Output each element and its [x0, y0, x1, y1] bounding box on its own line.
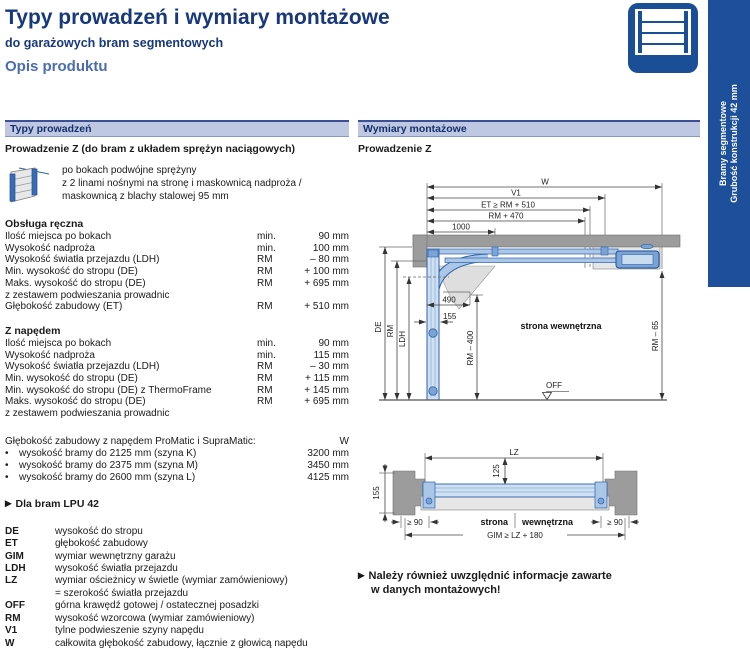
table-row: Min. wysokość do stropu (DE)RM+ 100 mm — [5, 266, 349, 278]
row-label: Min. wysokość do stropu (DE) z ThermoFra… — [5, 385, 257, 397]
dim-label-de: DE — [374, 321, 383, 332]
page-title: Typy prowadzeń i wymiary montażowe — [5, 6, 390, 30]
row-label: z zestawem podwieszania prowadnic — [5, 290, 257, 302]
legend-desc-line1: wymiar ościeżnicy w świetle (wymiar zamó… — [55, 575, 288, 586]
legend-abbr: ET — [5, 538, 55, 550]
door-panel — [427, 249, 439, 400]
lpu-note: ▶Dla bram LPU 42 — [5, 498, 349, 510]
legend-desc: wysokość wzorcowa (wymiar zamówieniowy) — [55, 613, 349, 625]
depth-row: •wysokość bramy do 2375 mm (szyna M)3450… — [5, 460, 349, 472]
row-value: 3200 mm — [289, 448, 349, 460]
depth-row: •wysokość bramy do 2125 mm (szyna K)3200… — [5, 448, 349, 460]
table-row: Wysokość nadprożamin.100 mm — [5, 243, 349, 255]
table-row: Ilość miejsca po bokachmin.90 mm — [5, 338, 349, 350]
mounting-note: ▶Należy również uwzględnić informacje za… — [358, 568, 612, 597]
bullet-icon: • — [5, 448, 19, 460]
row-value: 4125 mm — [289, 472, 349, 484]
row-label: Wysokość nadproża — [5, 243, 257, 255]
arrow-right-icon: ▶ — [358, 570, 365, 580]
inside-label: strona wewnętrzna — [520, 321, 602, 331]
row-value — [293, 290, 349, 302]
sectional-door-icon — [628, 3, 698, 73]
row-label: Maks. wysokość do stropu (DE) — [5, 278, 257, 290]
dim-label-125: 125 — [492, 464, 501, 478]
horizontal-track — [430, 249, 618, 254]
row-value: 100 mm — [293, 243, 349, 255]
row-value: + 145 mm — [293, 385, 349, 397]
off-label: OFF — [546, 381, 562, 390]
table-row: Ilość miejsca po bokachmin.90 mm — [5, 231, 349, 243]
row-label: Ilość miejsca po bokach — [5, 231, 257, 243]
legend-desc: wymiar ościeżnicy w świetle (wymiar zamó… — [55, 575, 349, 600]
depth-label: Głębokość zabudowy z napędem ProMatic i … — [5, 436, 289, 448]
dim-label-gim: GIM ≥ LZ + 180 — [487, 531, 543, 540]
legend-abbr: DE — [5, 526, 55, 538]
page-subtitle: do garażowych bram segmentowych — [5, 36, 223, 50]
legend-desc: górna krawędź gotowej / ostatecznej posa… — [55, 600, 349, 612]
row-unit: RM — [257, 396, 293, 408]
right-subheader: Prowadzenie Z — [358, 143, 700, 156]
row-label: Ilość miejsca po bokach — [5, 338, 257, 350]
roller — [429, 329, 437, 337]
depth-header-row: Głębokość zabudowy z napędem ProMatic i … — [5, 436, 349, 448]
note-line1: ▶Należy również uwzględnić informacje za… — [358, 568, 612, 583]
dim-label-155: 155 — [443, 312, 457, 321]
table-row: Maks. wysokość do stropu (DE)RM+ 695 mm — [5, 396, 349, 408]
intro-block: po bokach podwójne sprężyny z 2 linami n… — [5, 164, 349, 206]
table-row: Wysokość nadprożamin.115 mm — [5, 350, 349, 362]
row-value: – 30 mm — [293, 361, 349, 373]
section-title: Opis produktu — [5, 58, 108, 75]
row-value: 90 mm — [293, 231, 349, 243]
side-tab: Bramy segmentowe Grubość konstrukcji 42 … — [708, 0, 750, 287]
door-segment-line — [641, 43, 685, 45]
row-label: Maks. wysokość do stropu (DE) — [5, 396, 257, 408]
suspension-bracket — [601, 247, 608, 255]
row-value: 3450 mm — [289, 460, 349, 472]
dim-label-ldh: LDH — [398, 331, 407, 347]
side-tab-line2: Grubość konstrukcji 42 mm — [729, 84, 740, 203]
row-value — [293, 408, 349, 420]
inside-label-2: wewnętrzna — [521, 517, 574, 527]
row-unit: min. — [257, 350, 293, 362]
legend-desc: głębokość zabudowy — [55, 538, 349, 550]
legend-desc: wysokość światła przejazdu — [55, 563, 349, 575]
fascia-panel — [421, 496, 609, 510]
intro-line: po bokach podwójne sprężyny — [62, 164, 302, 177]
door-segment-line — [641, 21, 685, 23]
legend-desc: wymiar wewnętrzny garażu — [55, 551, 349, 563]
ceiling-anchor — [641, 244, 653, 248]
roller — [598, 498, 604, 504]
row-value: + 510 mm — [293, 301, 349, 313]
row-label: Min. wysokość do stropu (DE) — [5, 266, 257, 278]
lintel-wall — [413, 235, 427, 267]
legend-row: V1tylne podwieszenie szyny napędu — [5, 625, 349, 637]
manual-title: Obsługa ręczna — [5, 218, 349, 231]
row-label: wysokość bramy do 2125 mm (szyna K) — [19, 448, 289, 460]
table-row: Maks. wysokość do stropu (DE)RM+ 695 mm — [5, 278, 349, 290]
ceiling — [413, 235, 680, 247]
dim-label-lz: LZ — [509, 448, 518, 457]
table-row: z zestawem podwieszania prowadnic — [5, 290, 349, 302]
dim-label-ge90-left: ≥ 90 — [407, 518, 423, 527]
wall-left — [393, 471, 425, 515]
legend-desc: całkowita głębokość zabudowy, łącznie z … — [55, 638, 349, 650]
row-value: + 100 mm — [293, 266, 349, 278]
dim-label-490: 490 — [442, 296, 456, 305]
off-arrow-icon — [543, 393, 552, 400]
row-unit — [257, 290, 293, 302]
row-unit: RM — [257, 373, 293, 385]
dim-label-155: 155 — [372, 486, 381, 500]
depth-value: W — [289, 436, 349, 448]
row-label: Głębokość zabudowy (ET) — [5, 301, 257, 313]
roller — [429, 387, 437, 395]
row-label: Wysokość światła przejazdu (LDH) — [5, 361, 257, 373]
bullet-icon: • — [5, 460, 19, 472]
row-value: – 80 mm — [293, 254, 349, 266]
lpu-note-text: Dla bram LPU 42 — [16, 498, 99, 510]
legend-row: RMwysokość wzorcowa (wymiar zamówieniowy… — [5, 613, 349, 625]
legend-abbr: RM — [5, 613, 55, 625]
door-panel-section — [423, 484, 607, 497]
legend-row: GIMwymiar wewnętrzny garażu — [5, 551, 349, 563]
left-subheader: Prowadzenie Z (do bram z układem sprężyn… — [5, 143, 349, 156]
dim-label-rm470: RM + 470 — [489, 212, 524, 221]
dim-label-rm65: RM – 65 — [651, 320, 660, 351]
intro-line: maskownicą z blachy stalowej 95 mm — [62, 190, 302, 203]
note-line2: w danych montażowych! — [371, 583, 612, 597]
table-row: z zestawem podwieszania prowadnic — [5, 408, 349, 420]
suspension-bracket — [492, 247, 498, 256]
legend-abbr: GIM — [5, 551, 55, 563]
row-unit: RM — [257, 266, 293, 278]
row-unit: RM — [257, 301, 293, 313]
intro-line: z 2 linami nośnymi na stronę i maskownic… — [62, 177, 302, 190]
spring-track-icon — [5, 164, 51, 206]
door-segment-line — [641, 32, 685, 34]
table-row: Min. wysokość do stropu (DE) z ThermoFra… — [5, 385, 349, 397]
note-text1: Należy również uwzględnić informacje zaw… — [369, 570, 612, 582]
row-label: Wysokość nadproża — [5, 350, 257, 362]
row-unit: min. — [257, 231, 293, 243]
row-label: wysokość bramy do 2600 mm (szyna L) — [19, 472, 289, 484]
table-row: Wysokość światła przejazdu (LDH)RM– 30 m… — [5, 361, 349, 373]
top-roller-bracket — [428, 250, 438, 257]
intro-text: po bokach podwójne sprężyny z 2 linami n… — [62, 164, 302, 206]
row-label: Wysokość światła przejazdu (LDH) — [5, 254, 257, 266]
legend-desc: tylne podwieszenie szyny napędu — [55, 625, 349, 637]
row-unit — [257, 408, 293, 420]
legend-row: OFFgórna krawędź gotowej / ostatecznej p… — [5, 600, 349, 612]
dim-label-w: W — [541, 178, 549, 187]
legend-row: Wcałkowita głębokość zabudowy, łącznie z… — [5, 638, 349, 650]
dim-label-rm: RM — [386, 324, 395, 337]
dim-label-ge90-right: ≥ 90 — [607, 518, 623, 527]
left-section-bar: Typy prowadzeń — [5, 120, 349, 137]
powered-title: Z napędem — [5, 325, 349, 338]
row-unit: min. — [257, 338, 293, 350]
right-section-bar: Wymiary montażowe — [358, 120, 700, 137]
bullet-icon: • — [5, 472, 19, 484]
legend-row: DEwysokość do stropu — [5, 526, 349, 538]
row-label: Min. wysokość do stropu (DE) — [5, 373, 257, 385]
depth-block: Głębokość zabudowy z napędem ProMatic i … — [5, 436, 349, 484]
row-label: wysokość bramy do 2375 mm (szyna M) — [19, 460, 289, 472]
operator-head-inner — [622, 255, 653, 265]
row-unit: RM — [257, 254, 293, 266]
depth-row: •wysokość bramy do 2600 mm (szyna L)4125… — [5, 472, 349, 484]
operator-boom — [445, 258, 618, 263]
row-label: z zestawem podwieszania prowadnic — [5, 408, 257, 420]
row-unit: RM — [257, 278, 293, 290]
row-value: 115 mm — [293, 350, 349, 362]
table-row: Głębokość zabudowy (ET)RM+ 510 mm — [5, 301, 349, 313]
row-unit: min. — [257, 243, 293, 255]
side-tab-text: Bramy segmentowe Grubość konstrukcji 42 … — [708, 0, 750, 287]
left-column: Typy prowadzeń Prowadzenie Z (do bram z … — [5, 120, 349, 650]
legend-abbr: OFF — [5, 600, 55, 612]
row-value: + 115 mm — [293, 373, 349, 385]
legend-desc: wysokość do stropu — [55, 526, 349, 538]
legend-row: LDHwysokość światła przejazdu — [5, 563, 349, 575]
right-column: Wymiary montażowe Prowadzenie Z W V1 ET … — [358, 120, 700, 651]
wall-right — [605, 471, 637, 515]
arrow-right-icon: ▶ — [5, 498, 12, 508]
dim-label-1000: 1000 — [452, 223, 470, 232]
legend: DEwysokość do stropu ETgłębokość zabudow… — [5, 526, 349, 650]
legend-row: LZwymiar ościeżnicy w świetle (wymiar za… — [5, 575, 349, 600]
dim-label-rm400: RM – 400 — [466, 330, 475, 365]
roller — [426, 498, 432, 504]
plan-view-diagram: LZ 125 155 ≥ 90 ≥ 90 strona — [355, 438, 700, 558]
table-row: Min. wysokość do stropu (DE)RM+ 115 mm — [5, 373, 349, 385]
row-value: + 695 mm — [293, 396, 349, 408]
row-unit: RM — [257, 385, 293, 397]
spring-track-icon-svg — [5, 164, 51, 206]
legend-row: ETgłębokość zabudowy — [5, 538, 349, 550]
legend-abbr: W — [5, 638, 55, 650]
legend-abbr: V1 — [5, 625, 55, 637]
row-value: + 695 mm — [293, 278, 349, 290]
legend-abbr: LDH — [5, 563, 55, 575]
side-view-diagram: W V1 ET ≥ RM + 510 RM + 470 1000 DE — [355, 165, 700, 410]
inside-label-1: strona — [480, 517, 509, 527]
legend-desc-line2: = szerokość światła przejazdu — [55, 588, 349, 600]
dim-label-v1: V1 — [511, 189, 521, 198]
door-bottom-bar — [632, 55, 694, 67]
row-unit: RM — [257, 361, 293, 373]
table-row: Wysokość światła przejazdu (LDH)RM– 80 m… — [5, 254, 349, 266]
row-value: 90 mm — [293, 338, 349, 350]
legend-abbr: LZ — [5, 575, 55, 600]
side-tab-line1: Bramy segmentowe — [718, 101, 729, 186]
dim-label-et: ET ≥ RM + 510 — [481, 201, 535, 210]
